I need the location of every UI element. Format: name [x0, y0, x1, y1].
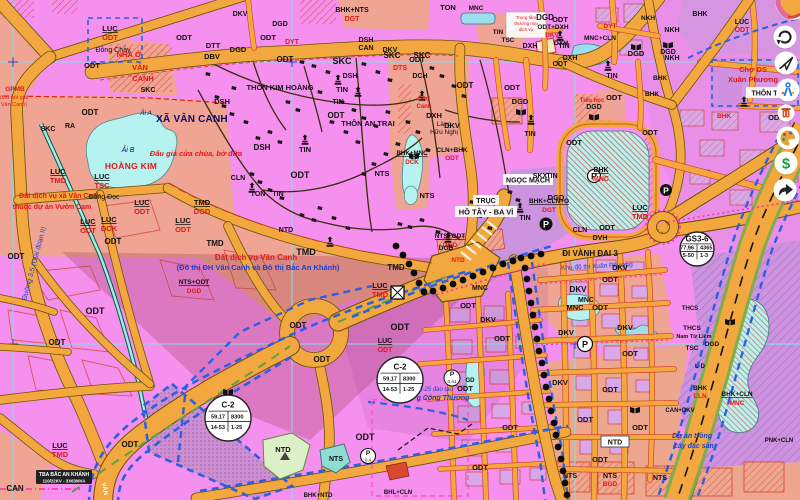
svg-text:MNC+CLN: MNC+CLN [584, 35, 616, 42]
svg-text:14-53: 14-53 [383, 387, 397, 393]
svg-text:BHK: BHK [693, 385, 707, 392]
svg-text:4365: 4365 [700, 245, 712, 251]
svg-text:ODT: ODT [49, 338, 66, 347]
svg-text:8300: 8300 [403, 376, 415, 382]
svg-text:Đấu giá cửa chùa, bờ đứa: Đấu giá cửa chùa, bờ đứa [150, 149, 242, 158]
svg-text:LUC: LUC [50, 167, 66, 176]
svg-text:110/22KV - 3X63MVA: 110/22KV - 3X63MVA [43, 479, 87, 484]
svg-text:59,17: 59,17 [211, 414, 225, 420]
svg-text:DTS: DTS [393, 65, 407, 72]
svg-text:TMD: TMD [52, 450, 69, 459]
svg-text:CAN: CAN [6, 484, 24, 493]
svg-text:THCS: THCS [683, 325, 701, 332]
svg-text:ODT: ODT [314, 355, 331, 364]
svg-text:P: P [543, 220, 549, 230]
svg-text:$: $ [782, 156, 791, 173]
svg-text:P: P [663, 186, 669, 196]
svg-text:TIN: TIN [299, 145, 311, 154]
svg-text:TIN: TIN [272, 191, 283, 198]
svg-text:Đất dịch vụ Vân Canh: Đất dịch vụ Vân Canh [215, 253, 297, 262]
svg-text:1-25 đào tạo: 1-25 đào tạo [419, 387, 453, 393]
svg-text:0,4: 0,4 [365, 458, 372, 463]
svg-text:DGD: DGD [536, 13, 554, 22]
svg-text:ODT: ODT [378, 347, 394, 354]
svg-text:cây đặc sản: cây đặc sản [674, 443, 714, 450]
svg-text:NTD: NTD [275, 445, 291, 454]
svg-text:ODT: ODT [134, 207, 150, 216]
svg-text:HOÀNG KIM: HOÀNG KIM [105, 161, 157, 171]
svg-text:MNC: MNC [593, 176, 609, 183]
svg-text:BHL+CLN: BHL+CLN [384, 490, 412, 496]
svg-text:BHK: BHK [645, 91, 659, 98]
svg-text:NTS: NTS [420, 191, 435, 200]
svg-text:DGT: DGT [345, 16, 361, 23]
svg-text:GD: GD [466, 378, 476, 384]
svg-text:DYT: DYT [285, 39, 300, 46]
svg-text:LUC: LUC [735, 19, 749, 26]
svg-text:DKV: DKV [233, 11, 248, 18]
svg-text:thuộc dự án Vườn Cam: thuộc dự án Vườn Cam [13, 204, 92, 211]
svg-text:CANH: CANH [132, 74, 154, 83]
svg-text:ODT: ODT [291, 170, 311, 180]
svg-text:DCK: DCK [405, 159, 419, 166]
svg-text:DSH: DSH [359, 37, 374, 44]
svg-text:77,96: 77,96 [680, 245, 694, 251]
svg-text:DXH: DXH [523, 43, 538, 50]
svg-text:Đồng Đọc: Đồng Đọc [88, 192, 120, 201]
svg-text:ODT: ODT [460, 301, 476, 310]
svg-text:THCS: THCS [682, 306, 698, 312]
svg-text:BHK: BHK [653, 75, 667, 82]
svg-text:DGD: DGD [586, 104, 602, 111]
svg-text:TSC: TSC [502, 37, 515, 44]
svg-text:RA: RA [65, 123, 75, 130]
svg-text:ODT: ODT [328, 111, 345, 120]
svg-text:SKC: SKC [414, 51, 431, 60]
svg-text:ODT: ODT [86, 306, 106, 316]
svg-text:Ải B: Ải B [121, 145, 135, 154]
svg-text:DKV: DKV [612, 263, 628, 272]
svg-text:ODT: ODT [80, 226, 96, 235]
svg-text:CAN: CAN [358, 45, 373, 52]
svg-text:DBV: DBV [204, 52, 220, 61]
svg-text:ODT: ODT [176, 33, 192, 42]
svg-text:DGD: DGD [194, 207, 211, 216]
svg-text:DKV: DKV [552, 378, 568, 387]
svg-text:CLN: CLN [231, 175, 245, 182]
svg-text:g Công Thương: g Công Thương [416, 395, 471, 402]
svg-text:C-2: C-2 [222, 401, 235, 410]
svg-text:ODT: ODT [599, 223, 615, 232]
svg-text:ODT: ODT [504, 83, 520, 92]
svg-text:NTS: NTS [563, 473, 577, 480]
svg-text:GS3-6: GS3-6 [685, 234, 709, 243]
svg-text:Ải A: Ải A [139, 108, 152, 117]
svg-text:DGD: DGD [548, 193, 565, 202]
svg-text:ODT: ODT [553, 61, 569, 68]
svg-text:THÔN AN TRAI: THÔN AN TRAI [341, 119, 394, 128]
svg-text:TMD: TMD [372, 290, 389, 299]
svg-text:BHK+NTD: BHK+NTD [304, 493, 334, 499]
svg-text:TSC: TSC [95, 181, 111, 190]
svg-text:Chợ DS: Chợ DS [739, 65, 767, 74]
svg-text:TIN: TIN [336, 85, 348, 94]
svg-text:DGD: DGD [512, 97, 529, 106]
svg-text:TMD: TMD [50, 176, 67, 185]
svg-text:DGT: DGT [542, 207, 556, 214]
svg-text:CLN: CLN [693, 393, 707, 400]
svg-text:ODT: ODT [592, 303, 608, 312]
svg-text:DVH: DVH [593, 235, 608, 242]
svg-text:PNK+CLN: PNK+CLN [765, 438, 794, 444]
svg-text:ODT: ODT [552, 15, 568, 24]
svg-text:LUC: LUC [632, 203, 648, 212]
svg-text:ODT: ODT [105, 237, 122, 246]
svg-text:BHK: BHK [593, 167, 608, 174]
svg-text:DXH: DXH [563, 55, 578, 62]
svg-text:NTS+ODT: NTS+ODT [435, 233, 466, 240]
svg-text:MNC: MNC [566, 303, 584, 312]
svg-text:TIN: TIN [524, 131, 535, 138]
svg-text:Dự án trồng: Dự án trồng [672, 431, 713, 440]
svg-text:NTD: NTD [608, 440, 622, 447]
svg-text:GPMB: GPMB [5, 86, 25, 93]
svg-text:DGD: DGD [628, 49, 645, 58]
svg-text:ODT: ODT [82, 108, 99, 117]
svg-text:1-3: 1-3 [700, 253, 708, 259]
svg-text:ODT: ODT [84, 61, 100, 70]
svg-text:LUC: LUC [52, 441, 68, 450]
svg-text:ODT: ODT [735, 27, 751, 34]
svg-text:ODT: ODT [632, 423, 648, 432]
svg-text:ODT: ODT [356, 432, 376, 442]
svg-text:BHK: BHK [692, 11, 707, 18]
svg-text:BHK+NTS: BHK+NTS [335, 7, 369, 14]
svg-text:ODT: ODT [445, 155, 459, 162]
svg-text:P: P [582, 340, 588, 350]
svg-text:ODT: ODT [472, 463, 488, 472]
svg-text:BHK: BHK [717, 113, 731, 120]
svg-text:TON: TON [251, 191, 266, 198]
svg-text:DKV: DKV [480, 315, 496, 324]
svg-text:ODT: ODT [494, 334, 510, 343]
svg-text:LUC: LUC [378, 338, 392, 345]
svg-text:NKH: NKH [664, 55, 679, 62]
svg-text:LUC: LUC [175, 216, 191, 225]
svg-text:ODT: ODT [457, 384, 473, 393]
svg-text:TIN: TIN [606, 73, 617, 80]
svg-text:ODT: ODT [606, 93, 622, 102]
svg-text:TMD: TMD [206, 239, 224, 248]
svg-text:LUC: LUC [80, 217, 96, 226]
svg-text:14-53: 14-53 [211, 425, 225, 431]
svg-text:0,41: 0,41 [448, 379, 457, 384]
svg-text:1-25: 1-25 [231, 425, 242, 431]
svg-text:NTS: NTS [329, 456, 343, 463]
svg-text:(thu hồi giai: (thu hồi giai [0, 95, 28, 101]
svg-text:NKH: NKH [641, 15, 655, 22]
svg-text:TRỤC: TRỤC [476, 198, 495, 205]
svg-text:Tiểu học: Tiểu học [580, 97, 605, 104]
svg-text:L-D: L-D [695, 364, 706, 370]
svg-text:NTS: NTS [603, 473, 617, 480]
svg-text:TMD: TMD [194, 198, 211, 207]
svg-text:DYT: DYT [604, 23, 617, 30]
svg-text:ĐI VÀNH ĐAI 3: ĐI VÀNH ĐAI 3 [562, 249, 618, 258]
svg-text:NTS+ODT: NTS+ODT [179, 279, 210, 286]
svg-text:TIN: TIN [519, 215, 530, 222]
svg-text:Canh: Canh [417, 104, 432, 110]
svg-text:NTD: NTD [451, 257, 465, 264]
svg-text:DKV: DKV [545, 32, 559, 39]
svg-text:SKC: SKC [141, 87, 156, 94]
svg-text:Chợ: Chợ [418, 96, 431, 102]
svg-text:ODT+DXH: ODT+DXH [537, 24, 569, 31]
svg-text:8300: 8300 [231, 414, 243, 420]
svg-text:TIN: TIN [546, 173, 557, 180]
svg-text:(Đô thị ĐH Vân Canh và Đô thị: (Đô thị ĐH Vân Canh và Đô thị Bắc An Khá… [177, 263, 340, 272]
svg-text:5-50: 5-50 [683, 253, 694, 259]
svg-text:DKV: DKV [570, 285, 588, 294]
svg-text:Trung tâm: Trung tâm [516, 15, 537, 20]
svg-text:TON: TON [440, 3, 456, 12]
svg-text:Nam Từ Liêm: Nam Từ Liêm [676, 334, 711, 340]
svg-text:ODT: ODT [290, 321, 307, 330]
svg-text:SKC: SKC [41, 126, 56, 133]
svg-text:CLN: CLN [573, 227, 587, 234]
svg-text:Xuân Phương: Xuân Phương [728, 75, 778, 84]
svg-text:TIN: TIN [493, 29, 504, 36]
svg-text:DCH: DCH [412, 73, 427, 80]
svg-text:XÃ VÂN CANH: XÃ VÂN CANH [156, 112, 228, 125]
svg-text:MNC: MNC [578, 297, 594, 304]
svg-text:DCK: DCK [101, 224, 118, 233]
svg-text:ODT: ODT [122, 440, 139, 449]
svg-text:DGD: DGD [660, 49, 676, 56]
svg-text:CLN+BHK: CLN+BHK [436, 147, 468, 154]
svg-text:MNC: MNC [469, 5, 484, 12]
svg-text:ODT: ODT [566, 138, 582, 147]
svg-text:ODT: ODT [102, 33, 118, 42]
svg-text:TIN: TIN [332, 99, 343, 106]
svg-text:MNC: MNC [472, 285, 488, 292]
svg-text:DSH: DSH [254, 143, 271, 152]
svg-text:P: P [450, 371, 455, 378]
svg-text:Vân Canh): Vân Canh) [1, 102, 27, 108]
svg-text:LUC: LUC [134, 198, 150, 207]
svg-text:DGD: DGD [272, 21, 288, 28]
svg-text:1-25: 1-25 [403, 387, 414, 393]
svg-text:TMD: TMD [296, 247, 316, 257]
svg-text:DKV: DKV [383, 47, 398, 54]
svg-text:LUC: LUC [101, 215, 117, 224]
svg-text:MNC: MNC [730, 400, 745, 407]
svg-text:ODT: ODT [175, 225, 191, 234]
svg-text:VÂN: VÂN [132, 63, 148, 72]
svg-text:DGD: DGD [187, 288, 202, 295]
svg-text:LUC: LUC [102, 24, 118, 33]
svg-text:NHÀ Ở: NHÀ Ở [117, 50, 142, 59]
svg-text:P: P [366, 450, 371, 457]
svg-text:ODT: ODT [277, 55, 294, 64]
svg-text:ODT: ODT [602, 275, 618, 284]
svg-text:dịch vụ: dịch vụ [519, 27, 534, 32]
svg-text:NTS: NTS [653, 475, 667, 482]
svg-text:DGD: DGD [230, 45, 247, 54]
svg-text:DSH: DSH [214, 97, 230, 106]
svg-text:thương mại: thương mại [514, 21, 537, 26]
svg-text:ODT: ODT [457, 81, 474, 90]
svg-text:ODT: ODT [8, 252, 25, 261]
svg-text:DXH: DXH [426, 111, 442, 120]
svg-text:LUC: LUC [372, 281, 388, 290]
svg-text:LUC: LUC [94, 172, 110, 181]
svg-text:59,17: 59,17 [383, 376, 397, 382]
svg-text:NTS: NTS [375, 169, 390, 178]
svg-text:ODT: ODT [577, 415, 593, 424]
svg-text:TSC: TSC [686, 345, 699, 352]
svg-text:ODT: ODT [502, 423, 518, 432]
svg-text:DGD: DGD [439, 245, 454, 252]
svg-text:ODT: ODT [391, 322, 411, 332]
svg-text:ODT: ODT [642, 128, 658, 137]
svg-text:ODT: ODT [260, 33, 276, 42]
svg-text:BHK+MNC: BHK+MNC [396, 150, 428, 157]
svg-text:SKC: SKC [332, 56, 352, 66]
svg-text:ODT: ODT [602, 385, 618, 394]
svg-text:NTD: NTD [279, 227, 293, 234]
svg-text:Hữu Nghị: Hữu Nghị [430, 129, 458, 136]
svg-text:DTT: DTT [206, 41, 221, 50]
svg-text:ODT: ODT [592, 455, 608, 464]
svg-text:TMD: TMD [632, 212, 649, 221]
svg-text:DKV: DKV [617, 323, 633, 332]
svg-text:HỒ TÂY - BA VÌ: HỒ TÂY - BA VÌ [459, 207, 514, 217]
svg-text:BGD: BGD [603, 481, 618, 488]
svg-text:DXH: DXH [554, 40, 568, 47]
svg-text:BHK+CLN: BHK+CLN [721, 391, 753, 398]
svg-text:DSH: DSH [343, 73, 358, 80]
svg-text:CAN+DKV: CAN+DKV [665, 408, 694, 414]
svg-text:TBA BẮC AN KHÁNH: TBA BẮC AN KHÁNH [39, 470, 90, 478]
svg-text:SKX: SKX [533, 173, 548, 180]
svg-text:DKV: DKV [558, 328, 574, 337]
svg-text:THÔN KIM HOÀNG: THÔN KIM HOÀNG [246, 83, 313, 92]
svg-text:TMD: TMD [387, 263, 405, 272]
svg-text:ODT: ODT [622, 349, 638, 358]
svg-text:NKH: NKH [664, 27, 679, 34]
svg-text:DKV: DKV [444, 121, 460, 130]
svg-text:C-2: C-2 [394, 363, 407, 372]
svg-text:DGD: DGD [705, 341, 720, 348]
